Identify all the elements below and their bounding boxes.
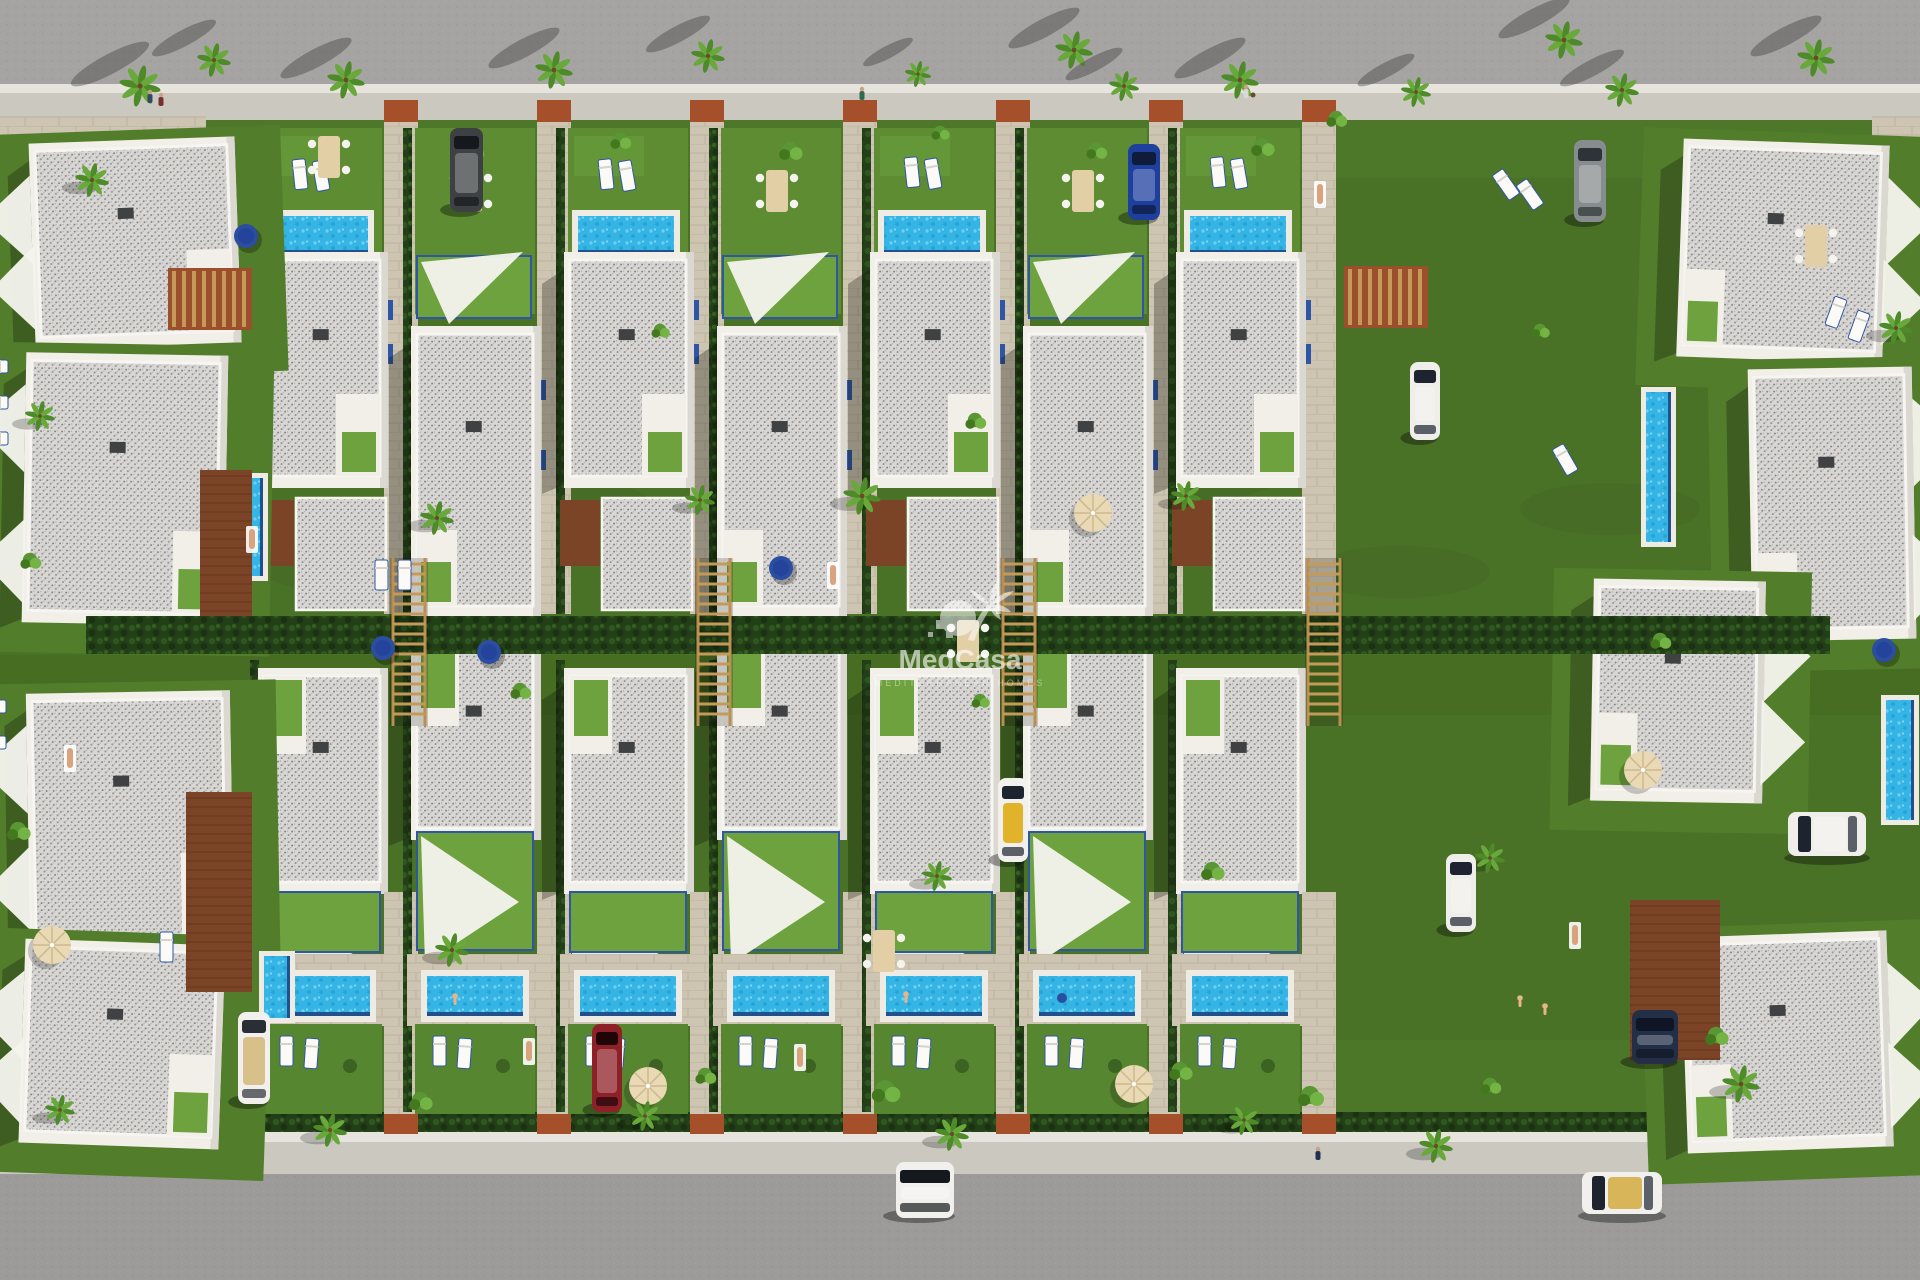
rect (1414, 425, 1436, 434)
rect (280, 1036, 293, 1066)
roof-vent (1078, 421, 1094, 432)
entry-pad (384, 100, 418, 122)
palm-trunk (1814, 56, 1819, 61)
car-white-suv-2 (1784, 812, 1870, 865)
chair (756, 200, 764, 208)
palm-trunk (950, 1132, 954, 1136)
roof-vent (1818, 457, 1834, 468)
circle (7, 829, 18, 840)
windshield (900, 1170, 950, 1183)
circle (1336, 116, 1347, 127)
circle (620, 138, 631, 149)
line (917, 1046, 930, 1047)
circle (646, 1084, 650, 1088)
chair (863, 934, 871, 942)
roof-vent (113, 776, 129, 787)
person-sunbathing (64, 745, 76, 772)
building-shadow (848, 684, 872, 900)
roof-vent (619, 742, 635, 753)
windshield (1002, 786, 1024, 799)
dining-table (1805, 225, 1827, 267)
chair (342, 166, 350, 174)
circle (1086, 149, 1096, 159)
car-roof (1814, 817, 1846, 851)
building-shadow (1154, 268, 1178, 494)
rect (1069, 1038, 1084, 1069)
windshield (454, 136, 479, 149)
palm-trunk (1739, 1082, 1744, 1087)
windshield (596, 1032, 618, 1045)
pool-rim (1039, 1012, 1135, 1016)
circle (610, 139, 620, 149)
person-sunbathing (1569, 922, 1581, 949)
rect (1222, 1038, 1237, 1069)
pergola-ladder (695, 558, 733, 726)
sun-lounger (0, 396, 8, 409)
palm-trunk (1122, 84, 1126, 88)
rect (1260, 432, 1294, 472)
car-roof (1608, 1177, 1642, 1209)
rect (1687, 301, 1718, 342)
circle (1540, 328, 1550, 338)
sun-lounger (0, 432, 8, 445)
car-roof (901, 1187, 949, 1199)
circle (1326, 117, 1336, 127)
sun-lounger (763, 1038, 778, 1069)
chair (308, 166, 316, 174)
rect (900, 1203, 950, 1212)
rect (186, 792, 252, 992)
circle (1298, 1094, 1310, 1106)
circle (510, 689, 520, 699)
rect (797, 1047, 803, 1067)
chair (981, 624, 989, 632)
villa-building (1154, 668, 1306, 900)
pool-rim (733, 1012, 829, 1016)
circle (159, 93, 163, 97)
circle (1132, 1082, 1136, 1086)
rect (0, 396, 8, 409)
villa-building (0, 352, 228, 632)
circle (50, 943, 54, 947)
person-walking (148, 90, 153, 103)
sun-lounger (292, 159, 308, 190)
dining-table (1072, 170, 1094, 212)
chair (1829, 255, 1837, 263)
rect (1636, 1049, 1674, 1058)
palm-trunk (1414, 90, 1418, 94)
sun-lounger (375, 560, 388, 590)
line (458, 1046, 471, 1047)
chair (1062, 174, 1070, 182)
circle (1244, 85, 1248, 89)
chair (484, 174, 492, 182)
private-pool (1033, 970, 1141, 1022)
palm-trunk (435, 516, 439, 520)
pool-rim (427, 1012, 523, 1016)
palm-trunk (1894, 326, 1898, 330)
palm-trunk (935, 874, 939, 878)
annex-roof (908, 498, 998, 610)
chair (1829, 229, 1837, 237)
chair (1795, 255, 1803, 263)
windshield (1414, 370, 1436, 383)
villa-building (1154, 252, 1306, 494)
terrace-turf (1182, 892, 1298, 952)
pool-water (884, 216, 980, 254)
rect (1911, 700, 1914, 820)
rect (173, 1092, 208, 1133)
palm-trunk (328, 1128, 332, 1132)
palm-trunk (450, 948, 454, 952)
circle (1316, 1147, 1320, 1151)
annex-roof (602, 498, 692, 610)
chair (1062, 200, 1070, 208)
sun-lounger (1210, 157, 1226, 188)
scene-svg: MedCasa MEDITERRANEAN HOMES (0, 0, 1920, 1280)
car-roof (597, 1049, 617, 1093)
pool-water (578, 216, 674, 254)
windshield (242, 1020, 266, 1033)
building-shadow (848, 268, 872, 494)
circle (1169, 1069, 1180, 1080)
pool-float (1057, 993, 1067, 1003)
circle (1876, 642, 1892, 658)
pool-water (427, 976, 523, 1016)
rect (954, 432, 988, 472)
palm-trunk (1238, 78, 1243, 83)
chair (756, 174, 764, 182)
pergola-ladder (1305, 558, 1343, 726)
palm-trunk (137, 83, 142, 88)
person-sunbathing (246, 526, 258, 553)
pool-rim (1192, 1012, 1288, 1016)
chair (1795, 229, 1803, 237)
circle (980, 698, 990, 708)
palm-trunk (344, 78, 349, 83)
pool-water (272, 216, 368, 254)
rect (168, 268, 252, 330)
rect (892, 1036, 905, 1066)
palm-trunk (1488, 856, 1492, 860)
chair (308, 140, 316, 148)
rect (1000, 300, 1005, 320)
logo-pixel (928, 632, 933, 637)
rect (148, 94, 153, 103)
rect (694, 300, 699, 320)
palm-trunk (1184, 494, 1188, 498)
rect (0, 700, 6, 713)
palm-trunk (552, 68, 557, 73)
circle (903, 991, 909, 997)
chair (863, 960, 871, 968)
entry-pad (996, 1114, 1030, 1134)
chair (897, 934, 905, 942)
terrace-turf (570, 892, 686, 952)
roof-vent (1078, 706, 1094, 717)
roof-vent (772, 706, 788, 717)
sun-lounger (0, 736, 6, 749)
aerial-development-render: MedCasa MEDITERRANEAN HOMES (0, 0, 1920, 1280)
circle (238, 228, 254, 244)
palm-trunk (706, 54, 710, 58)
roof-vent (1665, 652, 1681, 663)
entry-pad (537, 1114, 571, 1134)
circle (1650, 639, 1660, 649)
car-roof (1003, 803, 1023, 843)
private-pool (880, 970, 988, 1022)
circle (1705, 1034, 1716, 1045)
rect (648, 432, 682, 472)
car-roof (1637, 1035, 1673, 1045)
roof-vent (925, 329, 941, 340)
circle (1108, 1059, 1122, 1073)
person-walking (1244, 85, 1249, 98)
rect (287, 956, 290, 1018)
circle (773, 560, 789, 576)
rect (830, 565, 836, 585)
wood-deck (1172, 500, 1212, 566)
person-walking (159, 93, 164, 106)
person-sunbathing (523, 1038, 535, 1065)
roof-vent (1231, 329, 1247, 340)
rect (1450, 917, 1472, 926)
rect (1644, 1176, 1653, 1210)
pool-water (580, 976, 676, 1016)
private-pool (421, 970, 529, 1022)
person-sunbathing (827, 562, 839, 589)
dining-table (318, 136, 340, 178)
pool-water (1646, 392, 1671, 542)
rect (596, 1097, 618, 1106)
circle (30, 558, 41, 569)
circle (872, 1089, 885, 1102)
generated-scene (0, 0, 1920, 1280)
terrace-turf (264, 892, 380, 952)
chair (1096, 200, 1104, 208)
wood-deck (186, 792, 252, 992)
pool-rim (886, 1012, 982, 1016)
pergola-grid (1344, 266, 1428, 328)
rect (159, 97, 164, 106)
rect (905, 996, 908, 1003)
annex-roof (296, 498, 386, 610)
rect (1306, 300, 1311, 320)
logo-pixel (936, 620, 945, 629)
windshield (1798, 816, 1811, 852)
chair (897, 960, 905, 968)
rect (1002, 847, 1024, 856)
rect (574, 680, 608, 736)
circle (1716, 1032, 1729, 1045)
line (599, 167, 612, 168)
lap-pool (1881, 695, 1919, 825)
person-sunbathing (794, 1044, 806, 1071)
palm-trunk (916, 72, 919, 75)
chair (342, 140, 350, 148)
rect (1244, 89, 1249, 98)
entry-pad (1149, 100, 1183, 122)
rect (916, 1038, 931, 1069)
villa-building (848, 252, 1000, 494)
car-roof (1415, 387, 1435, 421)
lap-pool (259, 951, 295, 1023)
person-walking (860, 87, 865, 100)
circle (1490, 1083, 1501, 1094)
circle (496, 1059, 510, 1073)
dining-table (873, 930, 895, 972)
person-walking (1316, 1147, 1321, 1160)
roof-vent (466, 706, 482, 717)
person-sunbathing (1314, 181, 1326, 208)
villa-building (542, 252, 694, 494)
rect (454, 998, 457, 1005)
circle (20, 559, 30, 569)
pool-water (1192, 976, 1288, 1016)
dog (1251, 93, 1256, 98)
line (1223, 1046, 1236, 1047)
pergola-grid (168, 268, 252, 330)
sun-lounger (457, 1038, 472, 1069)
logo-sun (940, 600, 976, 636)
circle (409, 1099, 420, 1110)
edge-villa-right-1 (1635, 127, 1920, 395)
sun-lounger (0, 360, 8, 373)
circle (955, 1059, 969, 1073)
circle (481, 644, 497, 660)
watermark-tagline: MEDITERRANEAN HOMES (875, 678, 1046, 688)
roof-vent (1231, 742, 1247, 753)
circle (885, 1087, 900, 1102)
sun-lounger (304, 1038, 319, 1069)
circle (1180, 1067, 1193, 1080)
circle (420, 1097, 433, 1110)
circle (1262, 143, 1275, 156)
palm-trunk (860, 494, 865, 499)
circle (1310, 1092, 1324, 1106)
palm-trunk (698, 498, 702, 502)
rect (1519, 1000, 1522, 1007)
palm-trunk (90, 178, 94, 182)
rect (1572, 925, 1578, 945)
circle (705, 1073, 716, 1084)
circle (1641, 768, 1645, 772)
building-shadow (542, 268, 566, 494)
sun-lounger (0, 700, 6, 713)
roof-vent (107, 1008, 123, 1020)
annex-roof (1214, 498, 1304, 610)
rect (388, 300, 393, 320)
circle (343, 1059, 357, 1073)
rect (1186, 680, 1220, 736)
chair (790, 174, 798, 182)
roof-vent (772, 421, 788, 432)
circle (1532, 329, 1540, 337)
line (305, 1046, 318, 1047)
line (293, 167, 306, 168)
sun-lounger (892, 1036, 905, 1066)
entry-pad (843, 1114, 877, 1134)
roof-vent (313, 329, 329, 340)
car-white-cabrio (1578, 1172, 1666, 1223)
watermark-brand: MedCasa (899, 644, 1022, 675)
chair (790, 200, 798, 208)
entry-pad (537, 100, 571, 122)
sun-lounger (1069, 1038, 1084, 1069)
circle (695, 1074, 705, 1084)
wood-deck (200, 470, 252, 628)
rect (1668, 392, 1671, 542)
entry-pad (1149, 1114, 1183, 1134)
circle (932, 131, 940, 139)
private-pool (574, 970, 682, 1022)
wood-deck (560, 500, 600, 566)
line (764, 1046, 777, 1047)
pool-rim (580, 1012, 676, 1016)
roof-vent (619, 329, 635, 340)
circle (975, 418, 986, 429)
sun-lounger (1198, 1036, 1211, 1066)
sun-lounger (598, 159, 614, 190)
building-shadow (542, 684, 566, 900)
entry-pad (690, 100, 724, 122)
rect (1696, 1096, 1727, 1137)
pool-water (886, 976, 982, 1016)
circle (452, 993, 458, 999)
circle (1542, 1003, 1548, 1009)
pool-water (1190, 216, 1286, 254)
sun-lounger (1045, 1036, 1058, 1066)
rect (242, 1089, 266, 1098)
entry-pad (1302, 1114, 1336, 1134)
rect (880, 680, 914, 736)
circle (940, 130, 950, 140)
sun-lounger (1222, 1038, 1237, 1069)
sun-lounger (398, 560, 411, 590)
rect (1344, 266, 1428, 328)
rect (526, 1041, 532, 1061)
rect (375, 560, 388, 590)
circle (965, 419, 975, 429)
rect (1578, 207, 1602, 216)
circle (520, 688, 531, 699)
dining-table (766, 170, 788, 212)
circle (1212, 867, 1225, 880)
sun-lounger (904, 157, 920, 188)
sun-lounger (739, 1036, 752, 1066)
rect (1198, 1036, 1211, 1066)
rect (398, 560, 411, 590)
rect (454, 197, 479, 206)
pool-water (1039, 976, 1135, 1016)
rect (1132, 205, 1156, 214)
circle (1660, 638, 1671, 649)
rect (260, 478, 263, 576)
driveway (1302, 892, 1336, 1116)
roof-vent (466, 421, 482, 432)
roof-vent (1769, 1005, 1785, 1017)
pool-water (733, 976, 829, 1016)
windshield (1132, 152, 1156, 165)
rect (1306, 344, 1311, 364)
palm-trunk (38, 414, 42, 418)
entry-pad (384, 1114, 418, 1134)
rect (292, 159, 308, 190)
edge-villa-right-3 (1550, 568, 1813, 834)
rect (1316, 1151, 1321, 1160)
rect (67, 748, 73, 768)
top-road (0, 0, 1920, 120)
